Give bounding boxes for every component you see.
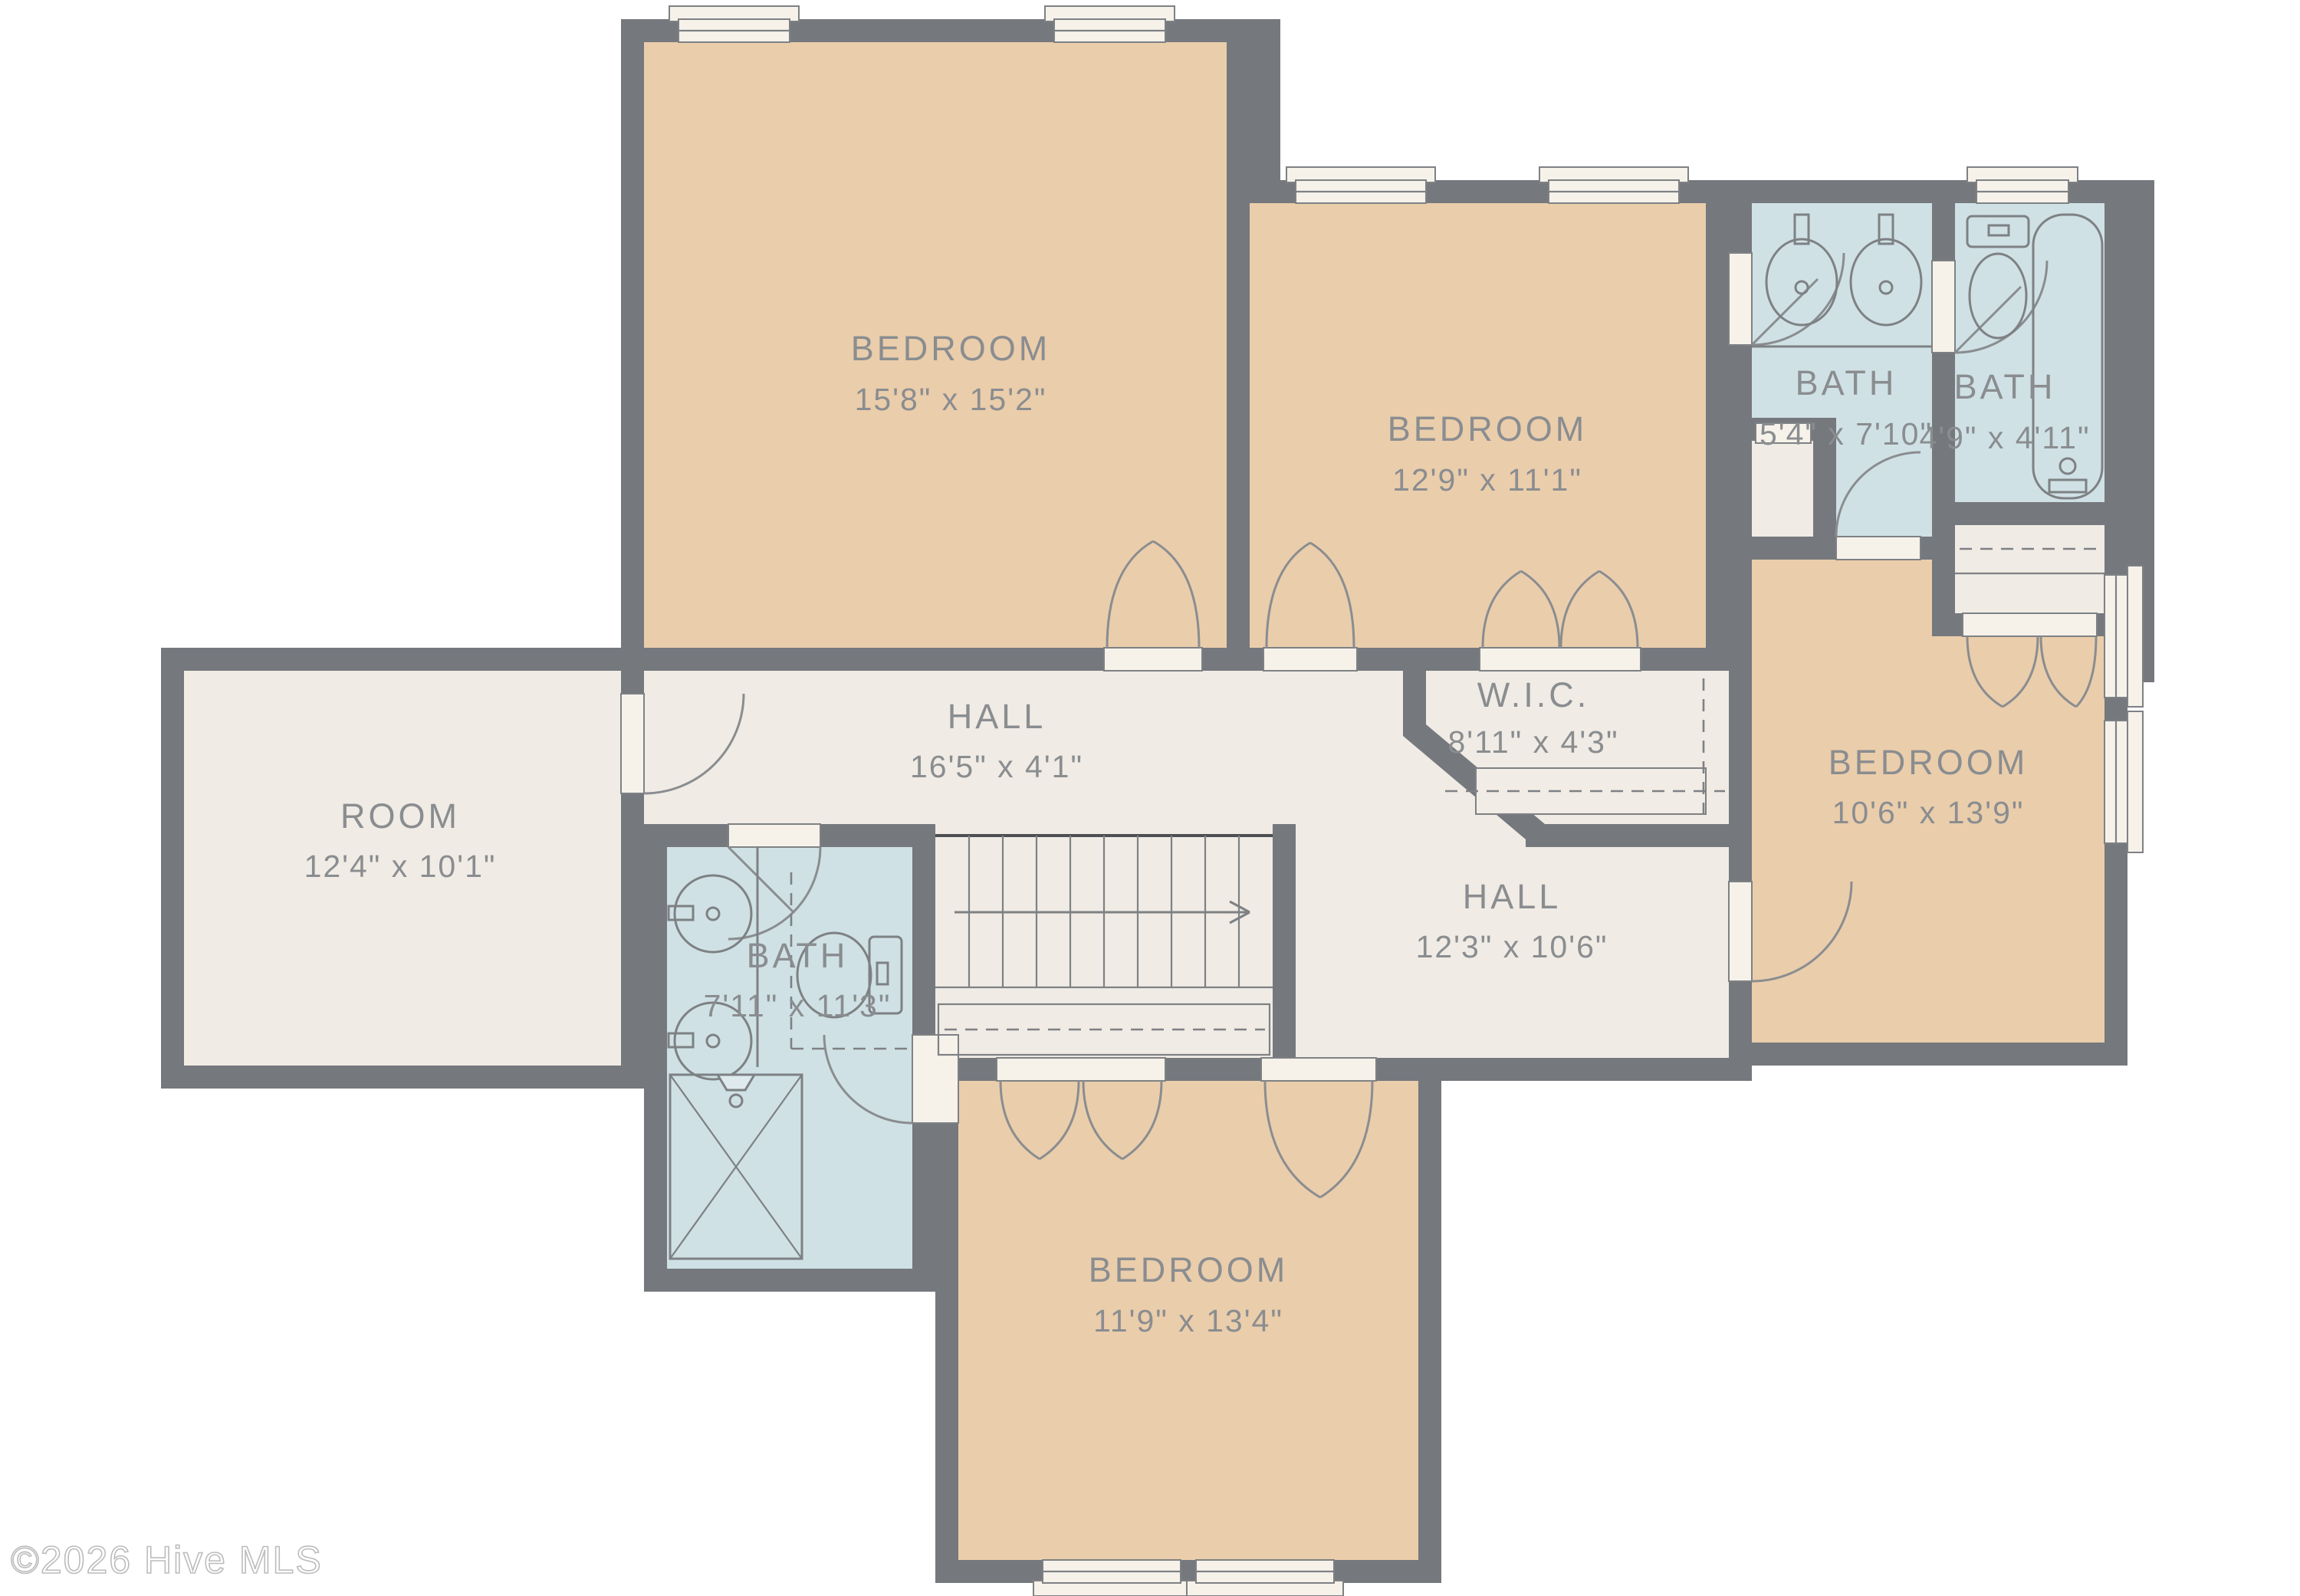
door-opening — [1729, 253, 1752, 345]
window-icon — [1187, 1560, 1343, 1596]
door-opening — [1836, 537, 1921, 560]
door-opening — [1932, 261, 1955, 353]
room-dims-bedroom-top-mid: 12'9" x 11'1" — [1392, 462, 1582, 498]
room-dims-hall-upper: 16'5" x 4'1" — [910, 749, 1083, 784]
window-icon — [1539, 167, 1688, 203]
room-label-hall-upper: HALL — [948, 697, 1046, 736]
room-label-bedroom-top-left: BEDROOM — [851, 329, 1051, 368]
room-label-bedroom-top-mid: BEDROOM — [1388, 409, 1588, 448]
room-label-wic: W.I.C. — [1477, 675, 1590, 714]
room-label-bedroom-right: BEDROOM — [1829, 743, 2029, 782]
floor-linen-closet — [1752, 441, 1813, 537]
door-opening — [1729, 882, 1752, 981]
floor-plan-drawing: BEDROOM 15'8" x 15'2" BEDROOM 12'9" x 11… — [0, 0, 2300, 1596]
door-opening — [1263, 648, 1357, 671]
window-icon — [669, 6, 799, 42]
floor-plan-page: BEDROOM 15'8" x 15'2" BEDROOM 12'9" x 11… — [0, 0, 2300, 1596]
window-icon — [1286, 167, 1435, 203]
floor-bath-main — [667, 847, 912, 1269]
room-label-bath-main: BATH — [747, 936, 849, 975]
door-opening — [912, 1035, 958, 1123]
room-dims-hall-lower: 12'3" x 10'6" — [1416, 929, 1608, 964]
floor-closet-right — [1955, 525, 2104, 613]
room-label-bath-vanity: BATH — [1796, 363, 1898, 402]
door-opening — [1104, 648, 1202, 671]
room-label-hall-lower: HALL — [1463, 877, 1562, 916]
watermark: ©2026 Hive MLS — [11, 1539, 323, 1581]
room-label-bath-tub: BATH — [1954, 367, 2056, 406]
room-label-bedroom-bottom: BEDROOM — [1089, 1250, 1289, 1289]
window-icon — [1045, 6, 1175, 42]
room-dims-wic: 8'11" x 4'3" — [1447, 724, 1618, 760]
room-dims-bedroom-bottom: 11'9" x 13'4" — [1093, 1303, 1283, 1338]
door-opening — [728, 824, 820, 847]
door-opening — [1963, 613, 2097, 636]
room-dims-bath-main: 7'11" x 11'3" — [704, 988, 892, 1023]
window-icon — [1033, 1560, 1190, 1596]
room-label-room-left: ROOM — [340, 796, 460, 836]
door-opening — [997, 1058, 1165, 1081]
door-opening — [621, 694, 644, 793]
room-dims-bath-vanity: 5'4" x 7'10" — [1760, 416, 1933, 452]
window-icon — [1967, 167, 2078, 203]
room-dims-bedroom-right: 10'6" x 13'9" — [1832, 795, 2025, 830]
door-opening — [1261, 1058, 1376, 1081]
room-dims-room-left: 12'4" x 10'1" — [304, 849, 497, 884]
window-icon — [2104, 711, 2143, 852]
door-opening — [1480, 648, 1641, 671]
window-icon — [2104, 566, 2143, 707]
room-dims-bedroom-top-left: 15'8" x 15'2" — [855, 382, 1047, 417]
room-dims-bath-tub: 4'9" x 4'11" — [1919, 420, 2090, 455]
